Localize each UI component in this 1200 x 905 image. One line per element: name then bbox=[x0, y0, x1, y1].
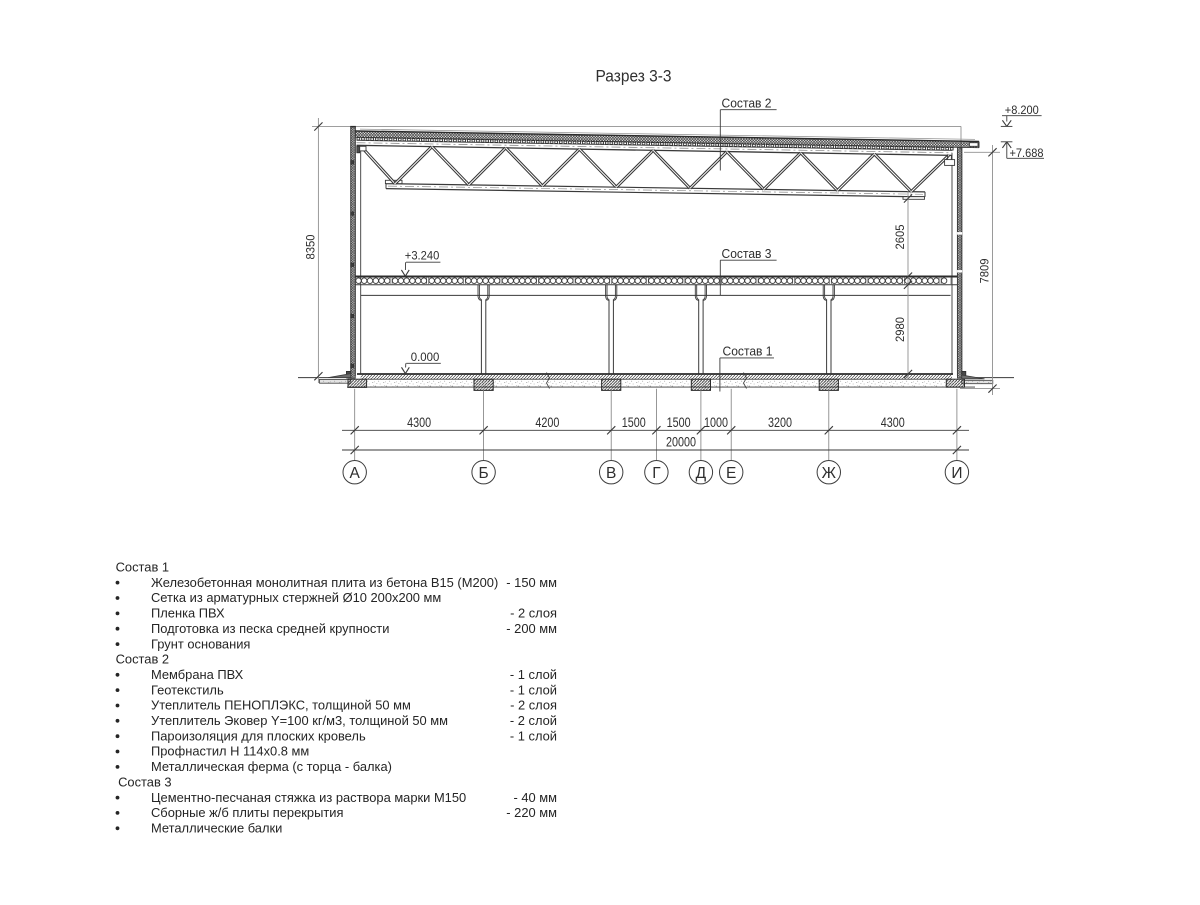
svg-text:8350: 8350 bbox=[304, 234, 318, 259]
svg-text:2980: 2980 bbox=[893, 317, 907, 342]
svg-text:Пароизоляция для плоских крове: Пароизоляция для плоских кровель bbox=[151, 728, 366, 743]
svg-text:Состав 3: Состав 3 bbox=[722, 246, 772, 261]
svg-text:1500: 1500 bbox=[622, 415, 646, 430]
svg-text:И: И bbox=[951, 465, 962, 482]
svg-text:4200: 4200 bbox=[535, 415, 559, 430]
svg-text:+7.688: +7.688 bbox=[1010, 146, 1044, 160]
svg-text:1000: 1000 bbox=[704, 415, 728, 430]
svg-text:Состав 2: Состав 2 bbox=[722, 95, 772, 110]
svg-text:Сборные ж/б плиты перекрытия: Сборные ж/б плиты перекрытия bbox=[151, 805, 343, 820]
svg-text:В: В bbox=[606, 465, 616, 482]
svg-text:- 220 мм: - 220 мм bbox=[506, 805, 557, 820]
svg-text:Металлические балки: Металлические балки bbox=[151, 821, 282, 836]
svg-text:4300: 4300 bbox=[881, 415, 905, 430]
svg-text:Грунт основания: Грунт основания bbox=[151, 636, 250, 651]
svg-text:Г: Г bbox=[652, 465, 661, 482]
svg-text:- 40 мм: - 40 мм bbox=[513, 790, 557, 805]
svg-text:Б: Б bbox=[479, 465, 489, 482]
svg-text:- 150 мм: - 150 мм bbox=[506, 575, 557, 590]
svg-text:+3.240: +3.240 bbox=[405, 249, 440, 263]
svg-text:Мембрана ПВХ: Мембрана ПВХ bbox=[151, 667, 244, 682]
svg-text:2605: 2605 bbox=[893, 224, 907, 249]
svg-text:Подготовка из песка средней кр: Подготовка из песка средней крупности bbox=[151, 621, 389, 636]
svg-text:Пленка ПВХ: Пленка ПВХ bbox=[151, 606, 225, 621]
svg-text:- 1 слой: - 1 слой bbox=[510, 667, 557, 682]
svg-text:20000: 20000 bbox=[666, 435, 696, 450]
svg-text:- 1 слой: - 1 слой bbox=[510, 682, 557, 697]
svg-text:Состав 2: Состав 2 bbox=[116, 652, 169, 667]
svg-text:Металлическая ферма (с торца -: Металлическая ферма (с торца - балка) bbox=[151, 759, 392, 774]
svg-text:Д: Д bbox=[696, 465, 707, 482]
svg-text:Цементно-песчаная стяжка из ра: Цементно-песчаная стяжка из раствора мар… bbox=[151, 790, 466, 805]
svg-text:Разрез 3-3: Разрез 3-3 bbox=[596, 68, 672, 86]
svg-text:Геотекстиль: Геотекстиль bbox=[151, 682, 224, 697]
svg-text:Профнастил Н 114х0.8 мм: Профнастил Н 114х0.8 мм bbox=[151, 744, 309, 759]
svg-text:А: А bbox=[350, 465, 361, 482]
svg-text:Утеплитель ПЕНОПЛЭКС, толщиной: Утеплитель ПЕНОПЛЭКС, толщиной 50 мм bbox=[151, 698, 411, 713]
svg-text:Железобетонная монолитная плит: Железобетонная монолитная плита из бетон… bbox=[151, 575, 498, 590]
svg-text:4300: 4300 bbox=[407, 415, 431, 430]
svg-text:1500: 1500 bbox=[667, 415, 691, 430]
svg-text:0.000: 0.000 bbox=[411, 350, 440, 364]
svg-text:Ж: Ж bbox=[822, 465, 837, 482]
svg-text:- 1 слой: - 1 слой bbox=[510, 728, 557, 743]
svg-text:- 200 мм: - 200 мм bbox=[506, 621, 557, 636]
svg-text:- 2 слой: - 2 слой bbox=[510, 713, 557, 728]
svg-text:Е: Е bbox=[726, 465, 736, 482]
svg-text:+8.200: +8.200 bbox=[1005, 103, 1039, 117]
svg-text:Сетка из арматурных стержней Ø: Сетка из арматурных стержней Ø10 200х200… bbox=[151, 590, 441, 605]
svg-text:3200: 3200 bbox=[768, 415, 792, 430]
svg-text:Состав 1: Состав 1 bbox=[116, 560, 169, 575]
svg-text:Состав 1: Состав 1 bbox=[723, 344, 773, 359]
svg-text:- 2 слоя: - 2 слоя bbox=[510, 606, 557, 621]
svg-text:- 2 слоя: - 2 слоя bbox=[510, 698, 557, 713]
svg-text:Состав 3: Состав 3 bbox=[118, 774, 171, 789]
svg-text:Утеплитель Эковер Y=100 кг/м3,: Утеплитель Эковер Y=100 кг/м3, толщиной … bbox=[151, 713, 448, 728]
svg-text:7809: 7809 bbox=[978, 258, 992, 283]
